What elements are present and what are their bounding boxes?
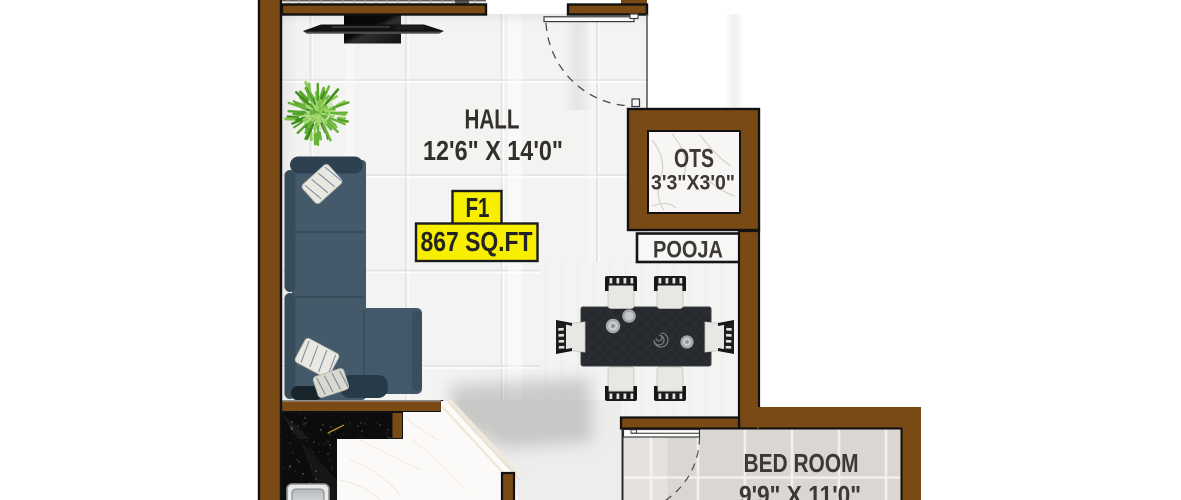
svg-text:HALL: HALL [465,104,520,135]
svg-text:867 SQ.FT: 867 SQ.FT [421,226,533,257]
svg-text:POOJA: POOJA [653,237,723,264]
svg-text:BED ROOM: BED ROOM [744,448,859,478]
svg-text:OTS: OTS [674,143,714,173]
svg-text:12'6" X 14'0": 12'6" X 14'0" [423,135,563,166]
svg-text:3'3"X3'0": 3'3"X3'0" [651,172,735,195]
svg-text:F1: F1 [466,192,490,223]
svg-text:9'9" X 11'0": 9'9" X 11'0" [739,480,861,500]
